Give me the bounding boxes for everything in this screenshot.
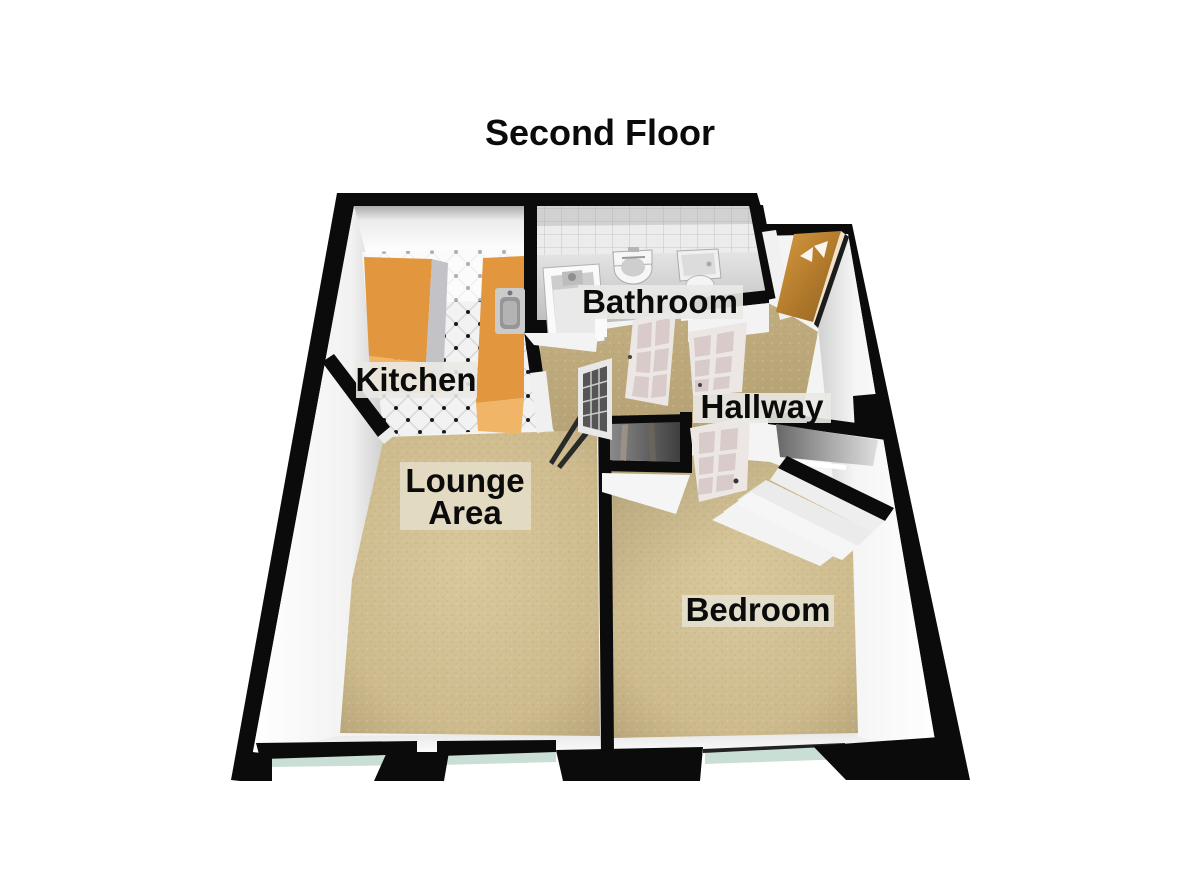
svg-text:Area: Area — [428, 494, 502, 531]
svg-text:Second Floor: Second Floor — [485, 112, 715, 153]
svg-text:Kitchen: Kitchen — [355, 361, 476, 398]
svg-text:Bedroom: Bedroom — [686, 591, 831, 628]
svg-text:Bathroom: Bathroom — [582, 283, 738, 320]
svg-text:Hallway: Hallway — [701, 388, 825, 425]
